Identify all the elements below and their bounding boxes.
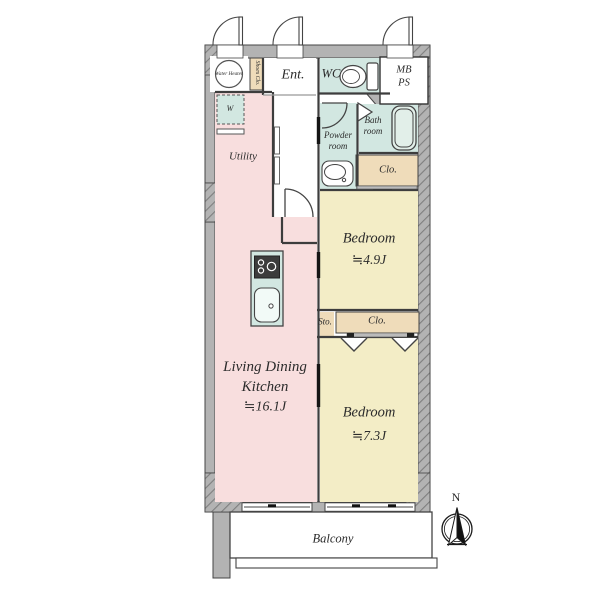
floorplan-drawing [0, 0, 600, 600]
meter-box-label-line2: PS [398, 78, 410, 91]
ldk-label: Living Dining Kitchen [209, 357, 321, 398]
closet-bedroom-label: Clo. [368, 316, 386, 329]
balcony-railing [236, 558, 437, 568]
shoes-closet-label: Shoes Clo. [253, 61, 260, 86]
bedroom-large-label: Bedroom [343, 404, 396, 421]
closet-rail-stop-left [347, 333, 354, 337]
kitchen-sink-icon [255, 288, 280, 322]
water-heater-label: Water Heater [214, 71, 244, 77]
stove-icon [255, 256, 280, 278]
sliding-windows [242, 503, 415, 512]
balcony-label: Balcony [313, 532, 354, 547]
closet-by-bath-label: Clo. [379, 165, 397, 178]
bedroom-small-floor [320, 190, 418, 310]
utility-label: Utility [229, 150, 257, 163]
storage-label: Sto. [318, 317, 332, 328]
bathtub-icon [392, 106, 416, 150]
entrance-label: Ent. [282, 68, 305, 85]
floor-plan-page: Water Heater Shoes Clo. Ent. WC MB PS W … [0, 0, 600, 600]
meter-box-label-line1: MB [396, 65, 411, 78]
hallway-floor [274, 95, 317, 217]
closet-rail-stop-right [407, 333, 414, 337]
closet-rail-upper [357, 186, 417, 189]
closet-rail-lower [347, 333, 414, 337]
bedroom-small-area: ≒4.9J [352, 252, 386, 268]
bath-room-label: Bath room [357, 115, 389, 137]
powder-room-label: Powder room [316, 130, 360, 152]
kitchen-counter [251, 251, 283, 326]
compass-north-label: N [452, 490, 461, 504]
wc-label: WC [322, 67, 341, 82]
washer-label: W [227, 104, 234, 114]
toilet-icon [340, 63, 378, 90]
compass-icon [442, 508, 472, 546]
bedroom-small-label: Bedroom [343, 230, 396, 247]
bedroom-large-area: ≒7.3J [352, 428, 386, 444]
utility-shelf [217, 129, 244, 134]
powder-sink-icon [322, 161, 353, 186]
ldk-area: ≒16.1J [244, 400, 286, 417]
